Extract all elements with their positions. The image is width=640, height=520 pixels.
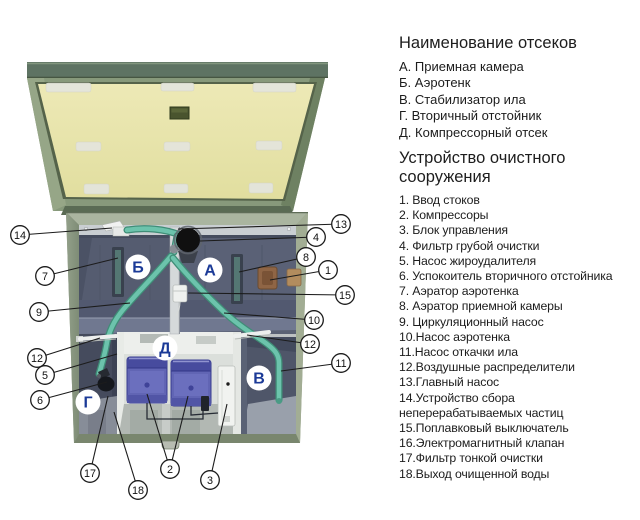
compartment-letter-a: А [198, 258, 223, 283]
screw [287, 227, 291, 231]
device-item-14: 14.Устройство сбора неперерабатываемых ч… [399, 391, 589, 421]
device-item-2: 2. Компрессоры [399, 208, 640, 223]
compartment-item-5: Д. Компрессорный отсек [399, 125, 640, 141]
compartment-letter-g: Г [76, 390, 101, 415]
compartment-item-3: В. Стабилизатор ила [399, 92, 640, 108]
callout-17-label: 17 [84, 468, 96, 480]
callout-9-label: 9 [36, 307, 42, 319]
device-item-16: 16.Электромагнитный клапан [399, 436, 640, 451]
device-item-1: 1. Ввод стоков [399, 193, 640, 208]
compartment-item-4: Г. Вторичный отстойник [399, 108, 640, 124]
device-item-6: 6. Успокоитель вторичного отстойника [399, 269, 640, 284]
compartment-letter-b: Б [126, 255, 151, 280]
compressor-left [127, 357, 167, 403]
control-unit [218, 366, 235, 426]
callout-13-label: 13 [335, 219, 347, 231]
valve-fitting [201, 396, 209, 411]
aerator-receiving-chamber [231, 254, 243, 304]
callout-3-label: 3 [207, 475, 213, 487]
aerator-aerotank [112, 247, 124, 297]
callout-4-label: 4 [313, 232, 319, 244]
compartments-title: Наименование отсеков [399, 33, 640, 53]
device-item-7: 7. Аэратор аэротенка [399, 284, 640, 299]
compartment-letter-a-label: А [204, 263, 216, 280]
legend-panel: Наименование отсеков А. Приемная камераБ… [399, 30, 640, 482]
devices-list: 1. Ввод стоков2. Компрессоры3. Блок упра… [399, 193, 640, 482]
device-item-8: 8. Аэратор приемной камеры [399, 299, 640, 314]
device-item-15: 15.Поплавковый выключатель [399, 421, 640, 436]
callout-7-label: 7 [42, 271, 48, 283]
compartment-letter-v: В [247, 366, 272, 391]
callout-6-label: 6 [37, 395, 43, 407]
callout-12-left-label: 12 [31, 353, 43, 365]
lid [27, 62, 328, 215]
compartment-letter-d-label: Д [159, 341, 171, 358]
callout-15-label: 15 [339, 290, 351, 302]
lid-top-bar [27, 62, 328, 78]
compartment-letter-g-label: Г [83, 395, 92, 412]
device-item-12: 12.Воздушные распределители [399, 360, 640, 375]
compartment-item-1: А. Приемная камера [399, 59, 640, 75]
compartment-letter-v-label: В [253, 371, 265, 388]
compartments-list: А. Приемная камераБ. АэротенкВ. Стабилиз… [399, 59, 640, 141]
device-item-10: 10.Насос аэротенка [399, 330, 640, 345]
device-item-17: 17.Фильтр тонкой очистки [399, 451, 640, 466]
septic-tank-infographic: АБВГД 123456789101112121314151718 Наимен… [0, 0, 640, 520]
compartment-item-2: Б. Аэротенк [399, 75, 640, 91]
callout-2-label: 2 [167, 464, 173, 476]
device-item-13: 13.Главный насос [399, 375, 640, 390]
callout-1-label: 1 [325, 265, 331, 277]
compartment-letter-d: Д [153, 336, 178, 361]
callout-14-label: 14 [14, 230, 26, 242]
callout-12-right-label: 12 [304, 339, 316, 351]
callout-8-label: 8 [303, 252, 309, 264]
lid-handle [170, 107, 189, 119]
device-item-18: 18.Выход очищенной воды [399, 467, 640, 482]
device-item-5: 5. Насос жироудалителя [399, 254, 640, 269]
callout-10-label: 10 [308, 315, 320, 327]
callout-18-label: 18 [132, 485, 144, 497]
callout-5-label: 5 [42, 370, 48, 382]
devices-title: Устройство очистного сооружения [399, 149, 599, 187]
device-item-4: 4. Фильтр грубой очистки [399, 239, 640, 254]
compartment-letter-b-label: Б [132, 260, 144, 277]
device-item-9: 9. Циркуляционный насос [399, 315, 640, 330]
device-item-3: 3. Блок управления [399, 223, 640, 238]
device-item-11: 11.Насос откачки ила [399, 345, 640, 360]
callout-11-label: 11 [335, 358, 346, 370]
